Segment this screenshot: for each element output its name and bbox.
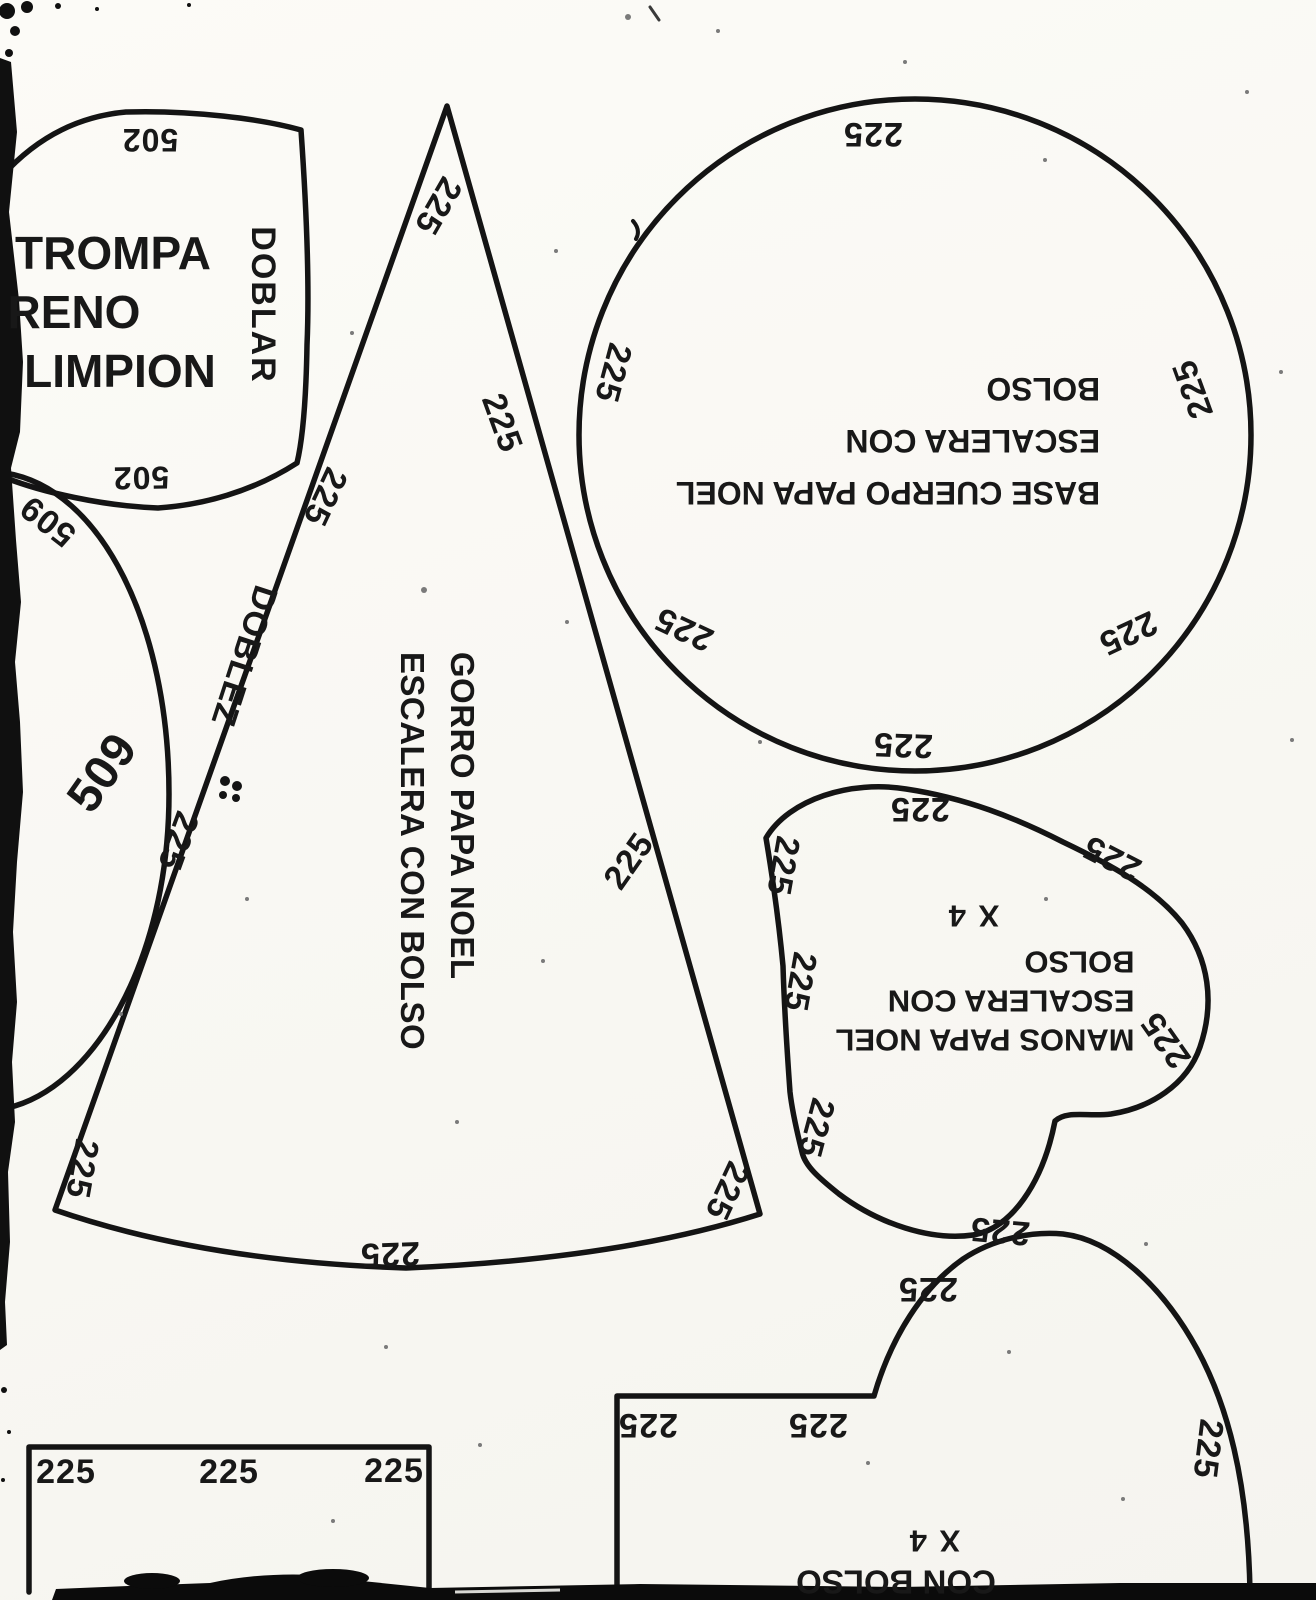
base-name-line2: ESCALERA CON xyxy=(676,415,1100,467)
bottom-piece-quantity-label: X 4 xyxy=(908,1526,961,1557)
fold-tick-mark xyxy=(633,221,638,239)
bottom-piece-name-partial: CON BOLSO xyxy=(796,1566,996,1599)
strip-size-label: 225 xyxy=(36,1455,96,1489)
gorro-name-line1: GORRO PAPA NOEL xyxy=(437,652,487,1050)
bottom-piece-size-label: 225 xyxy=(788,1408,848,1442)
bottom-piece-size-label: 225 xyxy=(1187,1417,1228,1480)
manos-name-line2: ESCALERA CON xyxy=(835,982,1134,1021)
manos-size-label: 225 xyxy=(890,792,950,826)
trompa-size-bottom: 502 xyxy=(113,462,170,495)
paper-specks xyxy=(119,14,1294,1523)
base-name-line3: BOLSO xyxy=(676,363,1100,415)
bottom-piece-size-label: 225 xyxy=(898,1272,958,1306)
manos-piece-name: MANOS PAPA NOEL ESCALERA CON BOLSO xyxy=(835,943,1134,1060)
strip-size-label: 225 xyxy=(199,1455,259,1489)
base-size-label: 225 xyxy=(873,727,934,763)
trompa-name-line3: LIMPION xyxy=(24,348,216,394)
gorro-name-line2: ESCALERA CON BOLSO xyxy=(387,652,437,1050)
bottom-piece-size-label: 225 xyxy=(618,1408,678,1442)
gorro-piece-name: GORRO PAPA NOEL ESCALERA CON BOLSO xyxy=(387,652,487,1050)
gorro-size-label: 225 xyxy=(360,1236,421,1272)
base-name-line1: BASE CUERPO PAPA NOEL xyxy=(676,467,1100,519)
manos-quantity-label: X 4 xyxy=(947,901,1000,932)
manos-name-line3: BOLSO xyxy=(835,943,1134,982)
trompa-fold-label: DOBLAR xyxy=(246,226,280,383)
stray-tick-mark xyxy=(650,7,659,20)
trompa-name-line1: TROMPA xyxy=(15,230,211,276)
doblez-dots xyxy=(219,776,242,802)
trompa-name-line2: RENO xyxy=(8,289,141,335)
scanned-pattern-sheet: 502 TROMPA RENO LIMPION DOBLAR 502 509 5… xyxy=(0,0,1316,1600)
strip-size-label: 225 xyxy=(364,1454,424,1488)
manos-size-label: 225 xyxy=(969,1211,1031,1250)
base-piece-name: BASE CUERPO PAPA NOEL ESCALERA CON BOLSO xyxy=(676,363,1100,519)
manos-name-line1: MANOS PAPA NOEL xyxy=(835,1021,1134,1060)
base-size-label: 225 xyxy=(843,117,903,151)
trompa-size-top: 502 xyxy=(122,124,178,156)
